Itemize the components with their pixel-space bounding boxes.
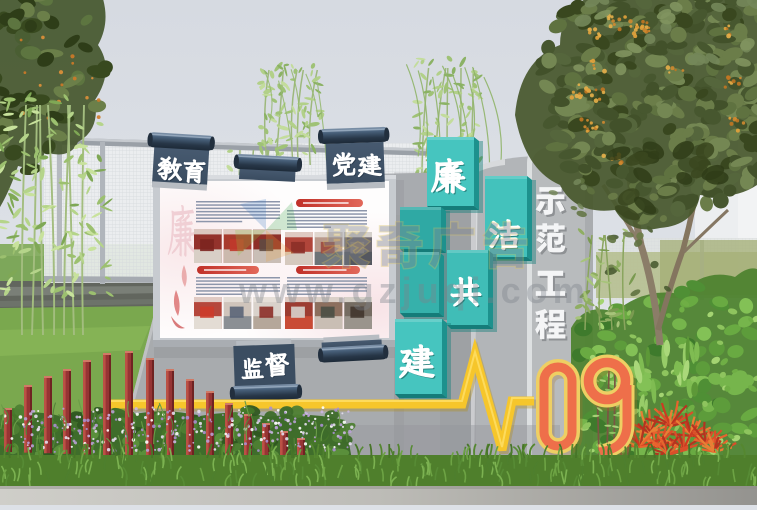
svg-text:www.gzjuqi.com: www.gzjuqi.com <box>238 270 590 311</box>
